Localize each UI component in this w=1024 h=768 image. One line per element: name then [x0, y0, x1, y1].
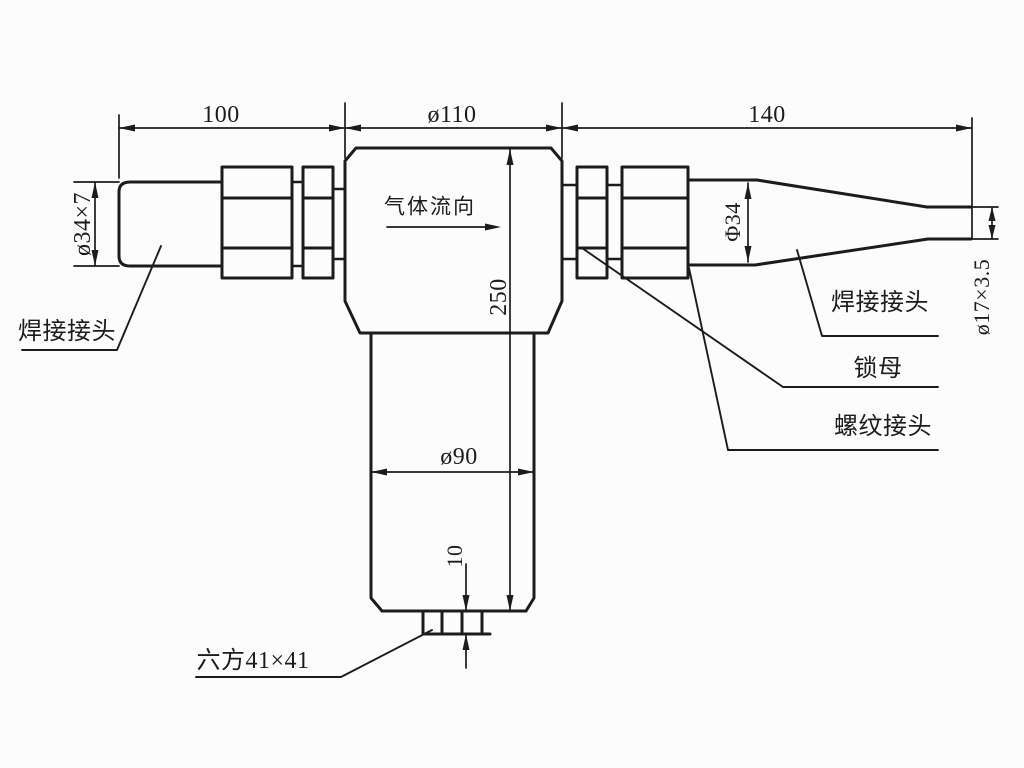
dim-body-width-label: ø110: [427, 103, 476, 127]
arrow-250-up: [507, 149, 514, 165]
arrow-250-down: [507, 595, 514, 611]
arrow-90-right: [518, 469, 534, 476]
filter-head-body: [345, 148, 562, 333]
outlet-weld-joint-label: 焊接接头: [831, 291, 929, 315]
outlet-union-nut: [622, 167, 688, 278]
arrow-140-right: [956, 125, 972, 132]
arrow-100-right: [329, 125, 345, 132]
inlet-stub-lines: [292, 182, 345, 266]
technical-drawing-page: 100 ø110 140 ø34×7 Φ34 ø17×3.5 250 ø90 1…: [0, 0, 1024, 768]
dim-inlet-pipe-label: ø34×7: [71, 192, 95, 256]
flow-direction-label: 气体流向: [384, 197, 476, 218]
threaded-joint-label: 螺纹接头: [834, 415, 932, 439]
technical-drawing-svg: [0, 0, 1024, 768]
dim-overall-height-label: 250: [487, 278, 511, 316]
top-extension-lines: [119, 103, 972, 239]
arrow-110-left: [345, 125, 361, 132]
dim-boss-height-label: 10: [444, 545, 466, 568]
part-outline: [119, 148, 971, 634]
hex-boss: [423, 611, 490, 634]
inlet-union-nut: [222, 167, 292, 278]
inlet-weld-pipe: [119, 182, 222, 266]
flow-arrowhead: [485, 224, 501, 231]
arrow-cone-up: [745, 183, 752, 199]
inlet-lock-nut: [303, 167, 333, 278]
arrow-cone-down: [745, 246, 752, 262]
arrow-10-down: [463, 595, 470, 611]
dim-inlet-length-label: 100: [202, 103, 240, 127]
hex-boss-label: 六方41×41: [196, 649, 309, 673]
arrow-10-up: [463, 634, 470, 650]
dimension-lines: [74, 103, 998, 668]
arrow-tube-down: [989, 225, 996, 239]
lock-nut-label: 锁母: [854, 357, 903, 381]
dim-outlet-length-label: 140: [748, 103, 786, 127]
arrow-90-left: [371, 469, 387, 476]
arrow-110-right: [546, 125, 562, 132]
arrow-100-left: [119, 125, 135, 132]
arrow-140-left: [562, 125, 578, 132]
dim-outlet-cone-label: Φ34: [722, 202, 744, 242]
dim-outlet-tube-label: ø17×3.5: [971, 259, 993, 335]
dim-bowl-diameter-label: ø90: [440, 445, 478, 469]
outlet-tube-dimension: [972, 207, 998, 239]
arrow-tube-up: [989, 207, 996, 221]
inlet-weld-joint-label: 焊接接头: [18, 320, 116, 344]
